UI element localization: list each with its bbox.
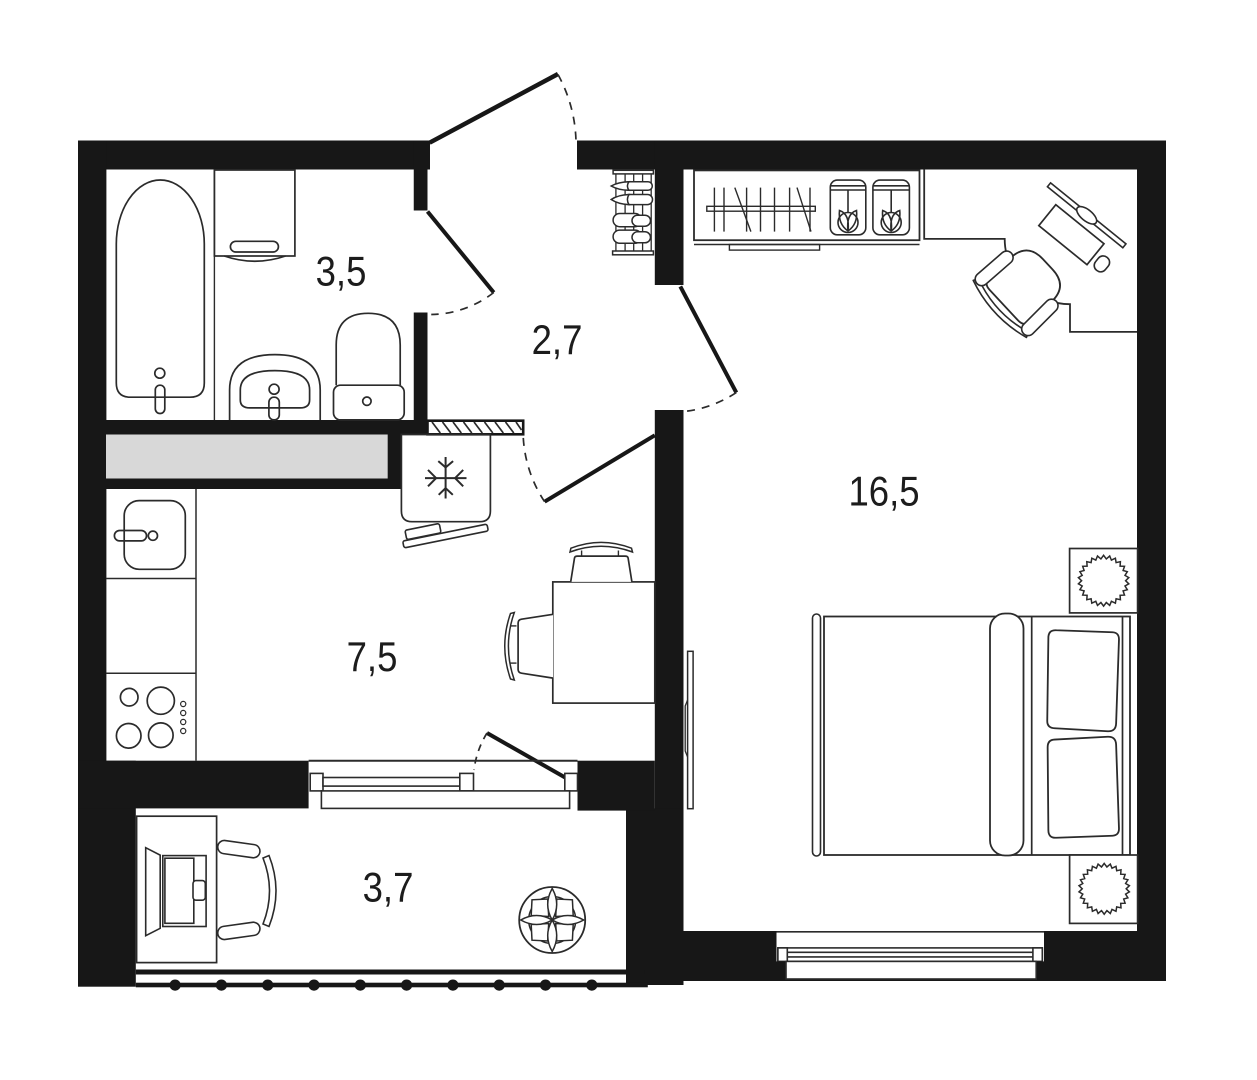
- svg-text:3,5: 3,5: [316, 248, 367, 295]
- svg-text:7,5: 7,5: [347, 633, 398, 680]
- svg-text:16,5: 16,5: [848, 468, 919, 515]
- svg-text:3,7: 3,7: [363, 864, 414, 911]
- svg-text:2,7: 2,7: [532, 317, 583, 364]
